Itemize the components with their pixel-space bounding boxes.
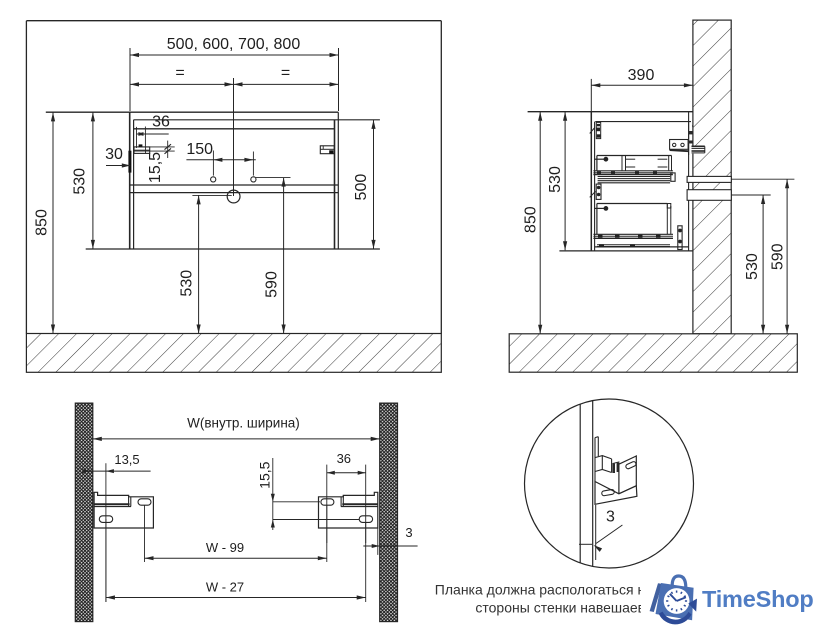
svg-text:36: 36 [152, 113, 170, 130]
svg-text:590: 590 [263, 271, 280, 298]
svg-text:W(внутр. ширина): W(внутр. ширина) [187, 416, 300, 431]
svg-text:530: 530 [72, 168, 89, 195]
svg-text:530: 530 [744, 253, 761, 280]
svg-text:W - 27: W - 27 [206, 580, 244, 595]
svg-text:TimeShop: TimeShop [702, 586, 814, 612]
svg-text:390: 390 [628, 67, 655, 84]
svg-text:530: 530 [547, 166, 564, 193]
svg-text:W - 99: W - 99 [206, 540, 244, 555]
svg-text:150: 150 [186, 141, 213, 158]
svg-text:36: 36 [337, 451, 351, 466]
svg-text:3: 3 [606, 509, 615, 526]
svg-text:=: = [175, 65, 184, 82]
svg-text:15,5: 15,5 [256, 461, 272, 488]
svg-text:15,5: 15,5 [147, 152, 164, 183]
svg-text:Планка должна распологаться н: Планка должна распологаться н [435, 581, 645, 597]
svg-text:=: = [281, 65, 290, 82]
svg-text:850: 850 [522, 206, 539, 233]
svg-text:13,5: 13,5 [114, 452, 139, 467]
svg-text:3: 3 [405, 525, 412, 540]
svg-text:30: 30 [105, 146, 123, 163]
svg-text:530: 530 [178, 270, 195, 297]
svg-text:850: 850 [33, 209, 50, 236]
svg-text:500, 600, 700, 800: 500, 600, 700, 800 [167, 36, 301, 53]
svg-text:500: 500 [353, 174, 370, 201]
svg-text:590: 590 [769, 243, 786, 270]
